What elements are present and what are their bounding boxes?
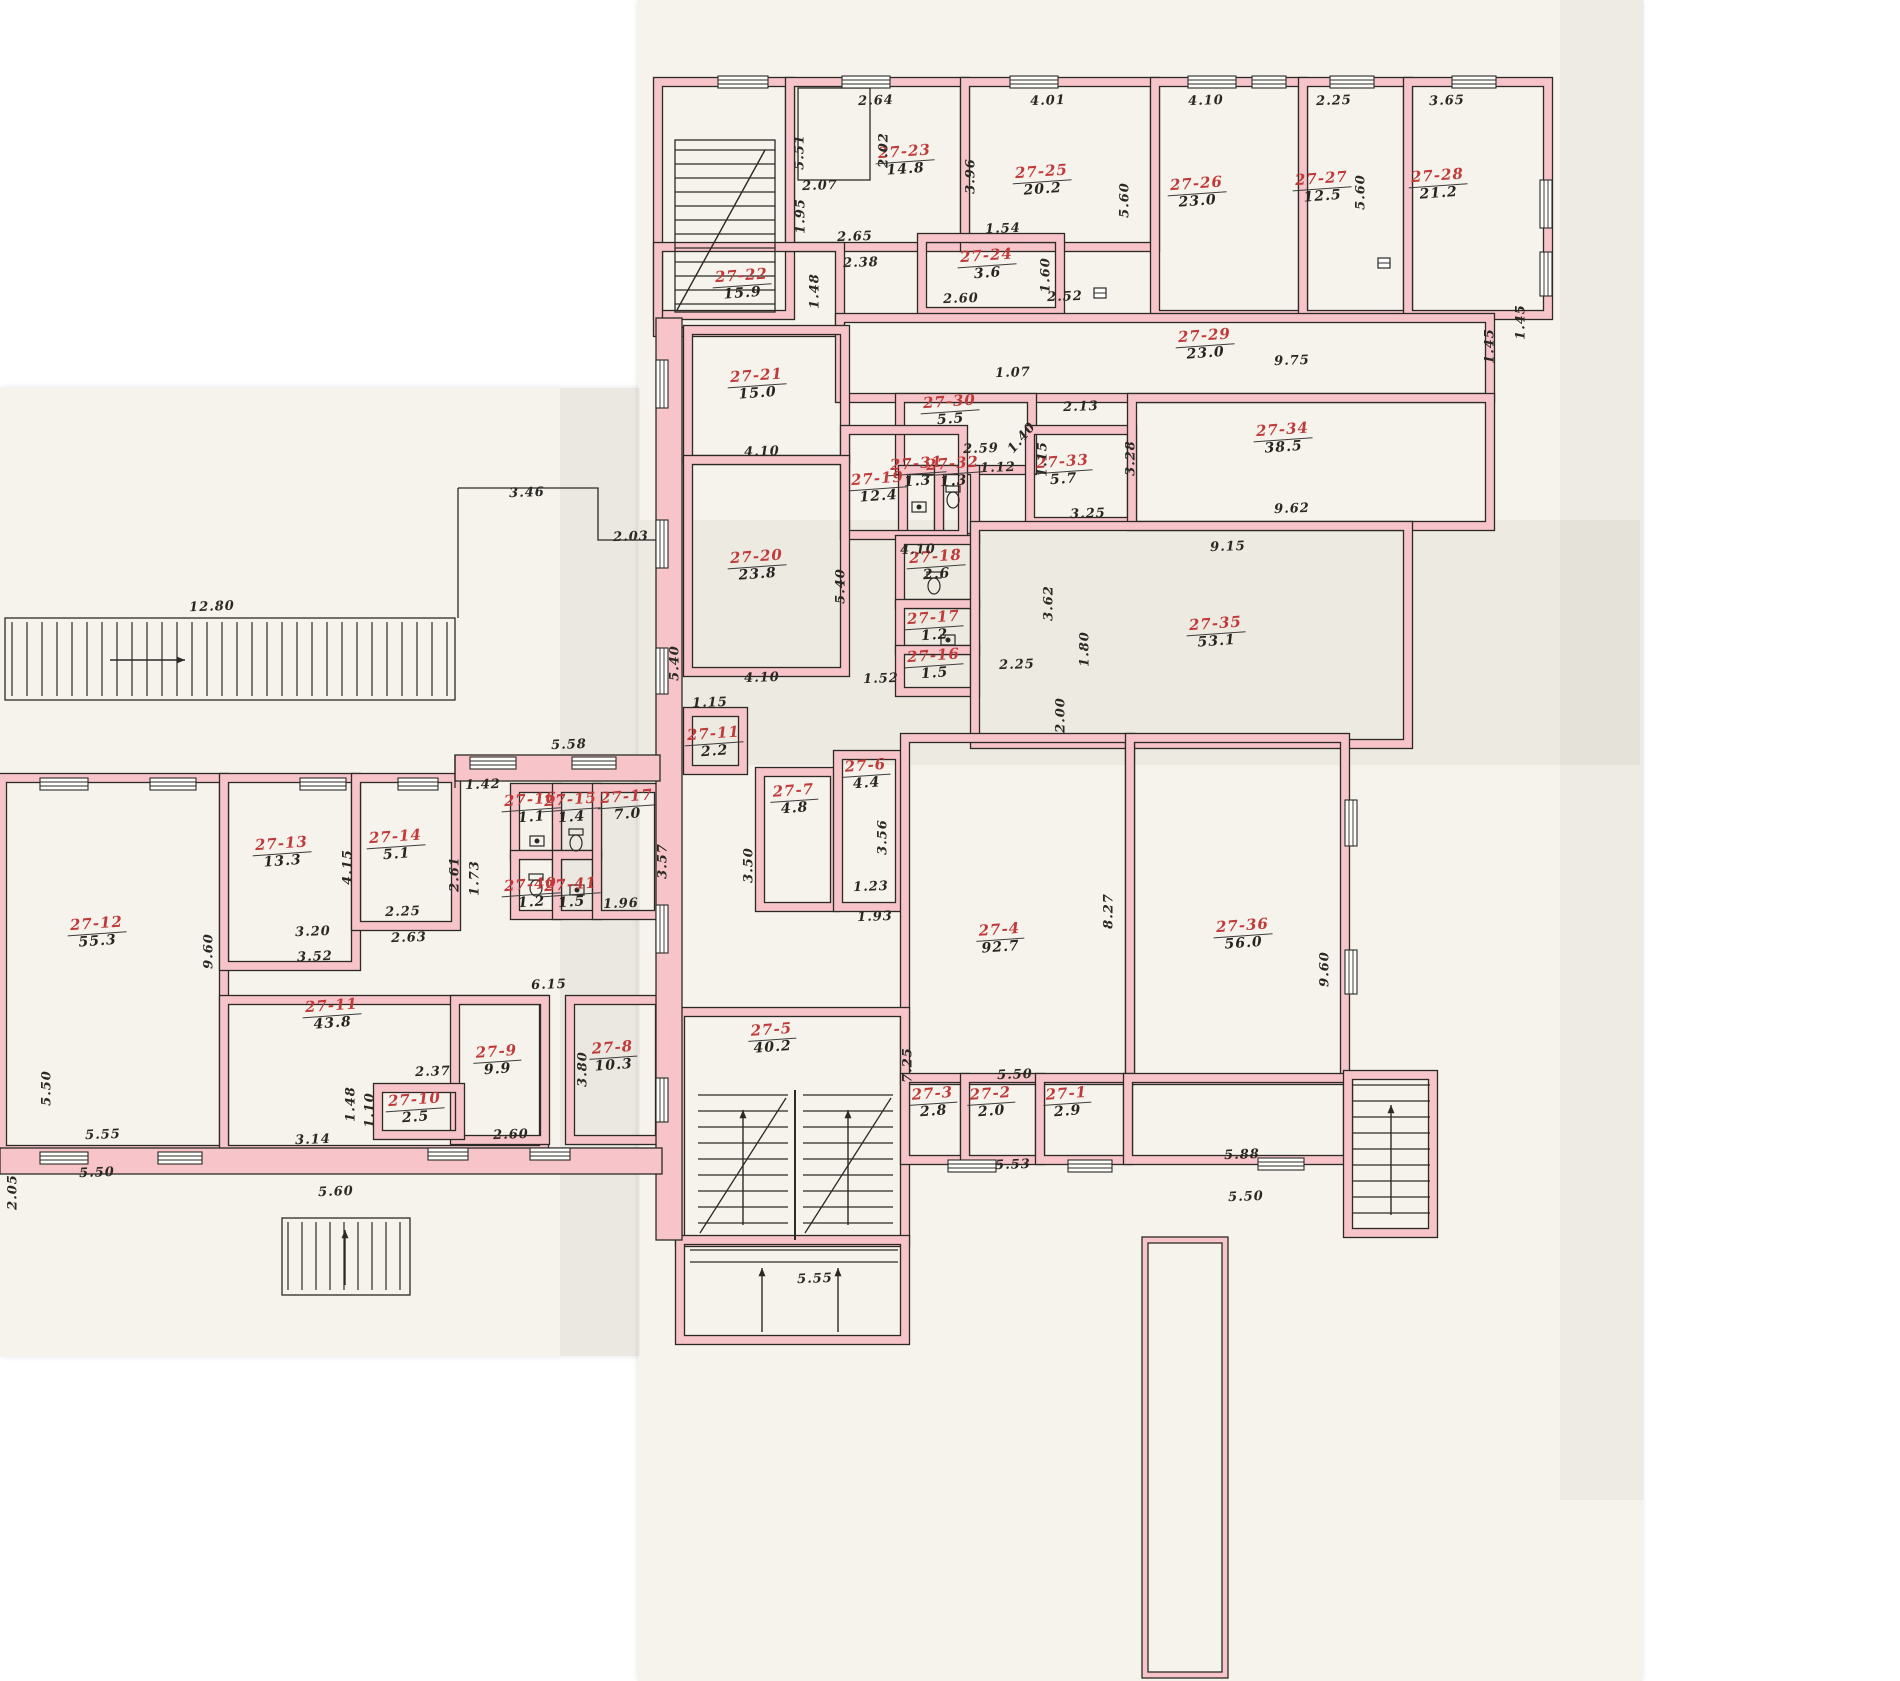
room-label-27-17: 27-171.2 [903,607,964,644]
dimension-label: 2.65 [837,229,873,245]
dimension-label: 1.12 [980,460,1016,476]
room-label-27-14: 27-145.1 [365,826,426,863]
dimension-label: 9.75 [1274,353,1310,369]
room-label-27-24: 27-243.6 [956,245,1017,282]
room-area: 10.3 [589,1056,637,1074]
dimension-label: 4.15 [341,849,356,885]
dimension-label: 1.10 [363,1092,378,1128]
room-label-27-7: 27-74.8 [769,781,819,818]
dimension-label: 4.10 [744,444,780,460]
room-label-27-28: 27-2821.2 [1407,165,1468,202]
dimension-label: 2.03 [613,529,649,545]
room-label-27-35: 27-3553.1 [1185,613,1246,650]
dimension-label: 4.10 [900,542,936,558]
dimension-label: 5.88 [1224,1147,1260,1163]
dimension-label: 3.96 [964,158,979,194]
dimension-label: 2.00 [1054,697,1069,733]
dimension-label: 2.52 [1047,289,1083,305]
room-label-27-19: 27-1912.4 [847,468,908,505]
dimension-label: 5.60 [1354,174,1369,210]
room-label-27-10: 27-102.5 [384,1089,445,1126]
dimension-label: 3.56 [876,819,891,855]
dimension-label: 4.10 [1188,93,1224,109]
dimension-label: 1.60 [1039,257,1054,293]
dimension-label: 1.23 [853,879,889,895]
dimension-label: 5.60 [318,1184,354,1200]
dimension-label: 5.53 [995,1157,1031,1173]
dimension-label: 2.59 [963,441,999,457]
dimension-label: 9.60 [1318,951,1333,987]
room-label-27-3: 27-32.8 [908,1084,958,1121]
dimension-label: 2.64 [858,93,894,109]
room-label-27-27: 27-2712.5 [1291,168,1352,205]
dimension-label: 3.50 [742,847,757,883]
room-label-27-12: 27-1255.3 [66,913,127,950]
room-label-27-9: 27-99.9 [472,1042,522,1079]
dimension-label: 12.80 [189,599,235,616]
dimension-label: 2.05 [6,1174,21,1210]
dimension-label: 7.25 [901,1047,916,1083]
room-label-27-30: 27-305.5 [919,391,980,428]
dimension-label: 2.61 [448,856,463,892]
dimension-label: 4.01 [1030,93,1066,109]
dimension-label: 2.63 [391,930,427,946]
room-label-27-21: 27-2115.0 [726,365,787,402]
dimension-label: 3.62 [1042,585,1057,621]
dimension-label: 2.60 [943,291,979,307]
dimension-label: 2.25 [999,657,1035,673]
room-label-27-22: 27-2215.9 [711,265,772,302]
room-label-27-15: 27-151.4 [540,789,601,826]
floor-plan-scan: 27-2314.827-2520.227-2623.027-2712.527-2… [0,0,1900,1681]
dimension-label: 9.60 [202,933,217,969]
dimension-label: 9.62 [1274,501,1310,517]
room-label-27-20: 27-2023.8 [726,546,787,583]
dimension-label: 2.37 [415,1064,451,1080]
dimension-label: 5.55 [797,1271,833,1287]
room-label-27-6: 27-64.4 [841,756,891,793]
dimension-label: 1.73 [468,860,483,896]
dimension-label: 5.50 [40,1070,55,1106]
dimension-label: 1.45 [1514,304,1529,340]
dimension-label: 3.25 [1070,506,1106,522]
dimension-label: 5.50 [1228,1189,1264,1205]
room-label-27-41: 27-411.5 [540,874,601,911]
dimension-label: 1.48 [344,1086,359,1122]
dimension-label: 5.51 [793,134,808,170]
dimension-label: 3.46 [509,485,545,501]
room-label-27-32: 27-321.3 [922,453,983,490]
room-label-27-26: 27-2623.0 [1166,173,1227,210]
dimension-label: 1.80 [1078,631,1093,667]
dimension-label: 6.15 [531,977,567,993]
room-label-27-36: 27-3656.0 [1212,915,1273,952]
dimension-label: 1.15 [692,695,728,711]
dimension-label: 5.55 [85,1127,121,1143]
dimension-label: 2.25 [1316,93,1352,109]
dimension-label: 2.13 [1063,399,1099,415]
dimension-label: 5.50 [79,1165,115,1181]
dimension-label: 1.45 [1483,328,1498,364]
dimension-label: 2.38 [843,255,879,271]
dimension-label: 9.15 [1210,539,1246,555]
dimension-label: 4.10 [744,670,780,686]
room-label-27-25: 27-2520.2 [1011,161,1072,198]
dimension-label: 2.60 [493,1127,529,1143]
dimension-label: 2.25 [385,904,421,920]
dimension-label: 1.48 [808,273,823,309]
dimension-label: 2.02 [877,132,892,168]
dimension-label: 3.80 [576,1051,591,1087]
dimension-label: 5.40 [668,645,683,681]
room-label-27-29: 27-2923.0 [1174,325,1235,362]
dimension-label: 8.27 [1102,893,1117,929]
dimension-label: 1.95 [794,198,809,234]
room-label-27-8: 27-810.3 [588,1038,638,1075]
dimension-label: 3.28 [1124,440,1139,476]
room-label-27-11: 27-1143.8 [301,995,362,1032]
dimension-label: 1.96 [603,896,639,912]
dimension-label: 1.93 [857,909,893,925]
dimension-label: 1.52 [863,671,899,687]
room-label-27-11: 27-112.2 [683,723,744,760]
dimension-label: 3.65 [1429,93,1465,109]
dimension-label: 5.60 [1118,182,1133,218]
room-label-27-16: 27-161.5 [903,645,964,682]
room-label-27-2: 27-22.0 [966,1084,1016,1121]
dimension-label: 5.40 [834,568,849,604]
room-area: 40.2 [748,1038,796,1056]
room-label-27-5: 27-540.2 [747,1020,797,1057]
dimension-label: 1.15 [1036,441,1051,477]
dimension-label: 3.57 [656,843,671,879]
dimension-label: 1.42 [465,777,501,793]
room-label-27-4: 27-492.7 [975,920,1025,957]
dimension-label: 5.58 [551,737,587,753]
dimension-label: 3.52 [297,949,333,965]
room-label-27-1: 27-12.9 [1042,1084,1092,1121]
dimension-label: 1.54 [985,221,1021,237]
dimension-label: 3.20 [295,924,331,940]
dimension-label: 1.07 [995,365,1031,381]
room-area: 92.7 [976,938,1024,956]
room-label-27-34: 27-3438.5 [1252,419,1313,456]
room-label-27-13: 27-1313.3 [251,833,312,870]
dimension-label: 3.14 [295,1132,331,1148]
room-label-27-17: 27-177.0 [596,786,657,823]
dimension-label: 2.07 [802,178,838,194]
dimension-label: 5.50 [997,1067,1033,1083]
